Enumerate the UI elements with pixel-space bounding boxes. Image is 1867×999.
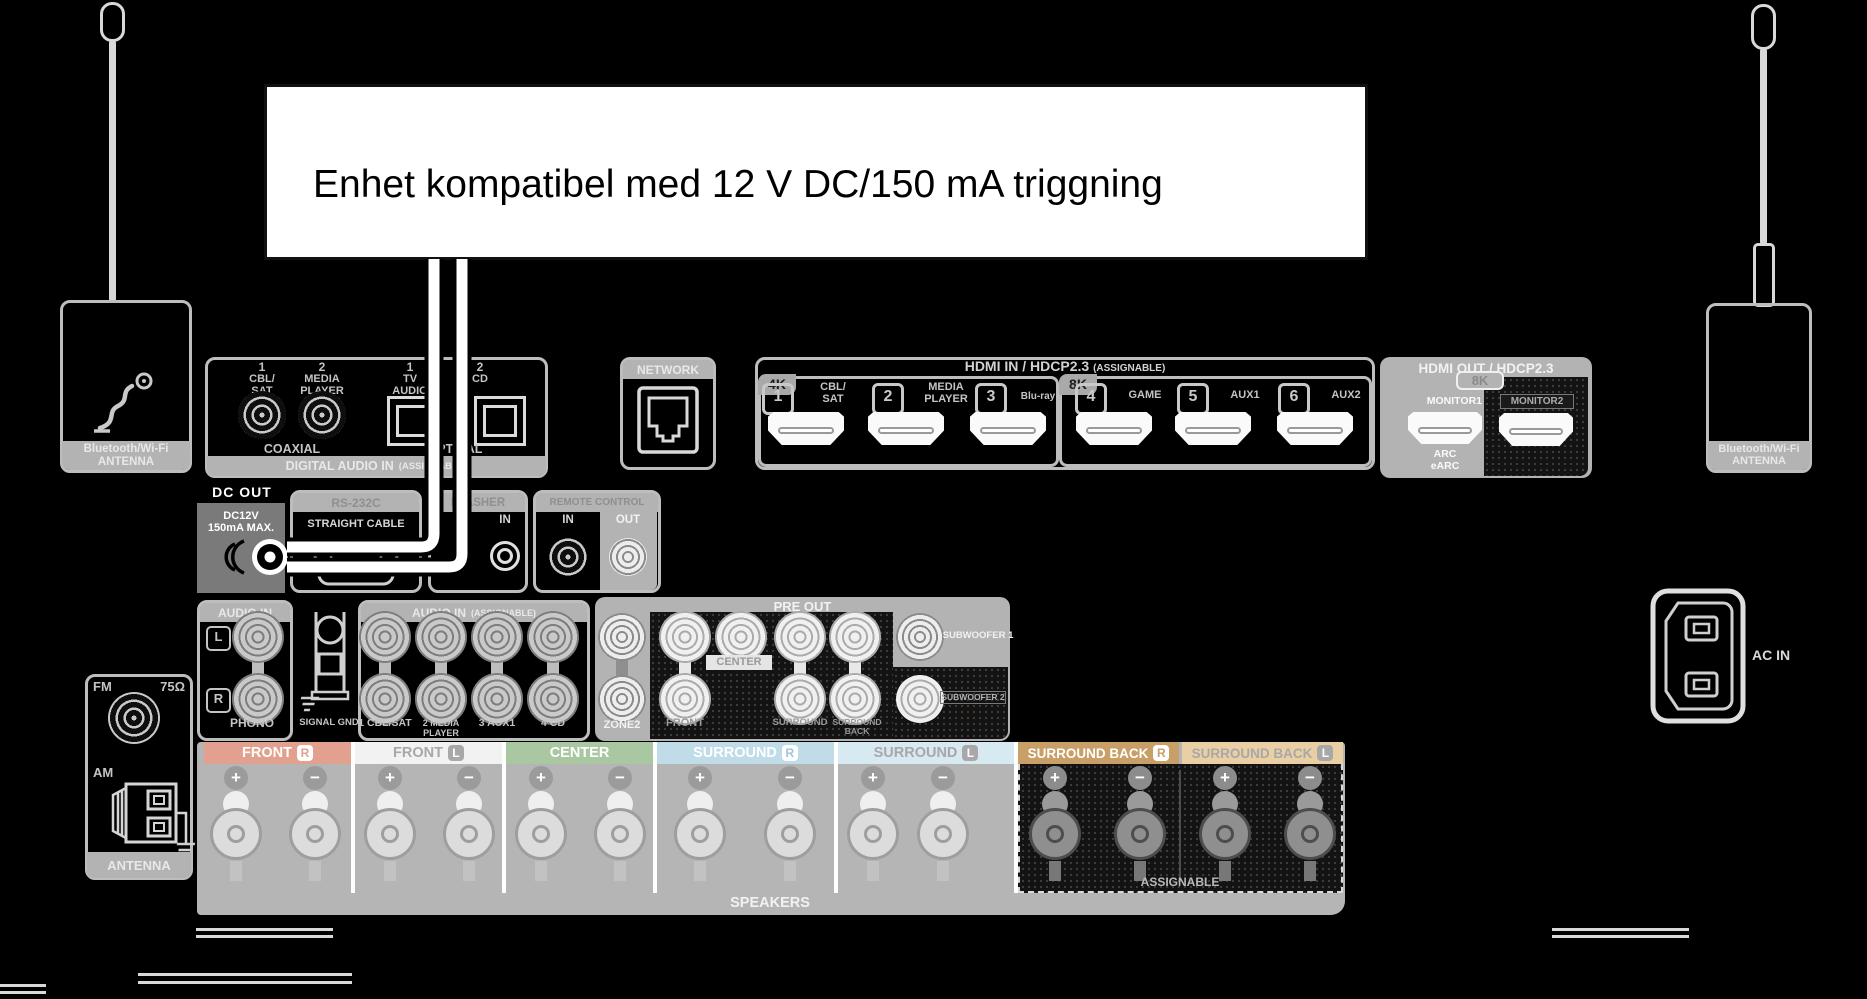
optical-port1-label: TV AUDIO	[380, 373, 440, 397]
speaker-binding-post: +	[363, 766, 417, 884]
speakers-assignable-divider	[1179, 770, 1181, 882]
hdmi4-label: GAME	[1112, 389, 1178, 401]
flasher-in-label: IN	[485, 514, 525, 527]
speaker-binding-post: +	[209, 766, 263, 884]
plus-terminal: +	[861, 766, 885, 790]
hdmi4-port	[1076, 412, 1152, 445]
antenna-wave-icon	[86, 368, 166, 434]
hdmi2-label: MEDIA PLAYER	[913, 381, 979, 405]
remote-out-label: OUT	[608, 514, 648, 527]
hdmi4-number: 4	[1075, 383, 1107, 415]
channel-label: SURROUND	[874, 745, 958, 761]
hdmi6-port	[1277, 412, 1353, 445]
center-pre-label: CENTER	[706, 655, 772, 670]
subwoofer2-label: SUBWOOFER 2	[940, 691, 1006, 704]
remote-in-jack	[549, 538, 587, 576]
optical-jack	[474, 396, 526, 446]
audio-in-label-4: 4 CD	[518, 718, 588, 730]
digital-audio-in-note: (ASSIGNABLE)	[399, 461, 468, 472]
hdmi5-port	[1175, 412, 1251, 445]
hdmi1-number: 1	[762, 383, 794, 415]
hdmi-in-header-note: (ASSIGNABLE)	[1093, 363, 1165, 374]
foot-mark	[196, 935, 333, 938]
rs232c-cable-label: STRAIGHT CABLE	[294, 518, 418, 530]
channel-side-badge: L	[1317, 745, 1333, 761]
hdmi3-number: 3	[975, 383, 1007, 415]
channel-label: SURROUND BACK	[1192, 746, 1313, 761]
digital-audio-in-title: DIGITAL AUDIO IN	[286, 459, 394, 473]
phono-l-jack	[232, 611, 284, 663]
channel-label: SURROUND	[693, 745, 777, 761]
flasher-header-label: FLASHER	[451, 497, 505, 509]
right-antenna-base	[1753, 243, 1775, 307]
hdmi-in-header-title: HDMI IN / HDCP2.3	[965, 358, 1089, 374]
channel-side-badge: R	[782, 745, 798, 761]
speaker-header-center: CENTER	[506, 742, 653, 764]
minus-terminal: −	[608, 766, 632, 790]
channel-label: SURROUND BACK	[1028, 746, 1149, 761]
speaker-header-surround-back-r: SURROUND BACK R	[1018, 742, 1179, 764]
channel-side-badge: L	[962, 745, 978, 761]
hdmi6-number: 6	[1278, 383, 1310, 415]
subwoofer1-jack	[896, 613, 944, 661]
audio-in-jack	[527, 611, 579, 663]
speaker-binding-post: −	[763, 766, 817, 884]
speaker-divider	[834, 742, 838, 893]
speaker-header-front-r: FRONT R	[204, 742, 351, 764]
left-antenna-label: Bluetooth/Wi-Fi ANTENNA	[62, 441, 190, 470]
foot-mark	[1552, 935, 1689, 938]
right-channel-badge: R	[206, 688, 231, 713]
channel-label: FRONT	[242, 745, 292, 761]
arc-earc-label: ARC eARC	[1419, 449, 1471, 472]
front-pre-label: FRONT	[650, 717, 720, 729]
channel-side-badge: R	[1153, 745, 1169, 761]
hdmi-out-8k-badge: 8K	[1456, 371, 1504, 390]
hdmi6-label: AUX2	[1322, 389, 1370, 401]
hdmi2-port	[868, 412, 944, 445]
left-antenna-rod	[109, 40, 116, 302]
right-antenna-label: Bluetooth/Wi-Fi ANTENNA	[1708, 441, 1810, 470]
foot-mark	[0, 991, 46, 994]
left-antenna-label-line1: Bluetooth/Wi-Fi	[84, 443, 169, 455]
right-antenna-tip	[1751, 4, 1776, 50]
hdmi-in-header: HDMI IN / HDCP2.3 (ASSIGNABLE)	[757, 359, 1373, 374]
ground-icon	[296, 694, 322, 714]
speaker-binding-post: +	[1028, 766, 1082, 884]
tuner-antenna-footer: ANTENNA	[87, 852, 191, 878]
minus-terminal: −	[1128, 766, 1152, 790]
speaker-binding-post: +	[1198, 766, 1252, 884]
remote-in-label: IN	[548, 514, 588, 527]
speaker-divider	[351, 742, 355, 893]
channel-side-badge: R	[297, 745, 313, 761]
speaker-header-surround-back-l: SURROUND BACK L	[1182, 742, 1343, 764]
subwoofer2-jack	[896, 675, 944, 723]
tuner-antenna-footer-label: ANTENNA	[107, 858, 171, 873]
monitor1-port	[1408, 412, 1482, 444]
network-header-label: NETWORK	[637, 363, 699, 377]
phono-label: PHONO	[217, 717, 287, 730]
channel-label: FRONT	[393, 745, 443, 761]
monitor2-port	[1499, 413, 1573, 446]
left-antenna-tip	[100, 2, 125, 42]
coaxial-label: COAXIAL	[252, 443, 332, 457]
plus-terminal: +	[224, 766, 248, 790]
flasher-header: FLASHER	[431, 493, 525, 512]
hdmi1-label: CBL/ SAT	[800, 381, 866, 405]
rs232c-header-label: RS-232C	[331, 496, 380, 510]
speakers-assignable-label: ASSIGNABLE	[1120, 876, 1240, 889]
surround-pre-jack	[774, 611, 826, 663]
speaker-binding-post: −	[442, 766, 496, 884]
hdmi5-label: AUX1	[1212, 389, 1278, 401]
speaker-binding-post: −	[288, 766, 342, 884]
plus-terminal: +	[378, 766, 402, 790]
minus-terminal: −	[457, 766, 481, 790]
foot-mark	[138, 973, 352, 976]
rear-panel-diagram: Bluetooth/Wi-Fi ANTENNA Bluetooth/Wi-Fi …	[0, 0, 1867, 999]
remote-out-jack	[609, 538, 647, 576]
digital-audio-in-footer: DIGITAL AUDIO IN (ASSIGNABLE)	[207, 456, 546, 476]
zone2-jack	[598, 675, 646, 723]
speaker-binding-post: −	[593, 766, 647, 884]
ac-inlet	[1648, 586, 1748, 726]
optical-label: OPTICAL	[415, 443, 495, 457]
front-pre-jack	[659, 611, 711, 663]
foot-mark	[138, 981, 352, 984]
ethernet-port	[636, 385, 700, 457]
hdmi3-port	[970, 412, 1046, 445]
hdmi1-port	[768, 412, 844, 445]
subwoofer1-label: SUBWOOFER 1	[942, 631, 1014, 641]
speaker-divider	[653, 742, 657, 893]
hdmi-out-8k-label: 8K	[1472, 373, 1489, 388]
dc-out-header: DC OUT	[199, 485, 285, 500]
hdmi5-number: 5	[1177, 383, 1209, 415]
minus-terminal: −	[1298, 766, 1322, 790]
flasher-in-jack-inner	[497, 548, 513, 564]
minus-terminal: −	[303, 766, 327, 790]
coaxial-jack	[298, 391, 346, 439]
speaker-binding-post: −	[1113, 766, 1167, 884]
fm-coax-jack	[108, 692, 160, 744]
fm-ohm-label: 75Ω	[143, 680, 185, 694]
callout-box: Enhet kompatibel med 12 V DC/150 mA trig…	[264, 84, 1368, 260]
foot-mark	[0, 984, 46, 987]
speaker-divider	[502, 742, 506, 893]
remote-control-header: REMOTE CONTROL	[536, 493, 658, 512]
fm-label: FM	[93, 680, 123, 694]
surround-back-pre-label: SURROUND BACK	[820, 718, 894, 737]
dc-trigger-jack	[222, 533, 298, 581]
coaxial-jack	[238, 391, 286, 439]
remote-control-header-label: REMOTE CONTROL	[550, 497, 645, 508]
audio-in-jack	[359, 611, 411, 663]
right-antenna-rod	[1760, 48, 1767, 245]
channel-label: CENTER	[550, 745, 610, 761]
speaker-binding-post: +	[846, 766, 900, 884]
foot-mark	[1552, 928, 1689, 931]
speaker-binding-post: −	[1283, 766, 1337, 884]
plus-terminal: +	[1213, 766, 1237, 790]
speaker-binding-post: +	[673, 766, 727, 884]
audio-in-jack	[471, 611, 523, 663]
ac-in-label: AC IN	[1752, 648, 1806, 663]
optical-port2-label: CD	[450, 373, 510, 385]
right-antenna-label-line2: ANTENNA	[1732, 456, 1786, 468]
optical-jack	[387, 396, 439, 446]
plus-terminal: +	[1043, 766, 1067, 790]
speaker-binding-post: −	[916, 766, 970, 884]
monitor2-label: MONITOR2	[1500, 394, 1574, 409]
speakers-footer-label: SPEAKERS	[680, 896, 860, 912]
audio-in-jack	[415, 611, 467, 663]
channel-side-badge: L	[448, 745, 464, 761]
speaker-header-surround-r: SURROUND R	[657, 742, 834, 764]
dsub-connector	[306, 536, 406, 590]
dc-out-rating: DC12V 150mA MAX.	[199, 510, 283, 534]
left-antenna-label-line2: ANTENNA	[98, 456, 154, 468]
minus-terminal: −	[931, 766, 955, 790]
hdmi2-number: 2	[872, 383, 904, 415]
speaker-binding-post: +	[514, 766, 568, 884]
speaker-header-surround-l: SURROUND L	[838, 742, 1014, 764]
hdmi3-label: Blu-ray	[1008, 391, 1068, 402]
plus-terminal: +	[688, 766, 712, 790]
left-channel-badge: L	[206, 626, 231, 651]
zone2-label: ZONE2	[587, 719, 657, 731]
network-header: NETWORK	[623, 360, 713, 379]
monitor1-label: MONITOR1	[1408, 396, 1482, 408]
foot-mark	[196, 928, 333, 931]
surround-back-pre-jack	[829, 611, 881, 663]
zone2-jack	[598, 613, 646, 661]
rs232c-header: RS-232C	[293, 493, 419, 512]
right-antenna-label-line1: Bluetooth/Wi-Fi	[1718, 444, 1799, 456]
callout-text: Enhet kompatibel med 12 V DC/150 mA trig…	[313, 163, 1163, 207]
speaker-header-front-l: FRONT L	[355, 742, 502, 764]
plus-terminal: +	[529, 766, 553, 790]
minus-terminal: −	[778, 766, 802, 790]
